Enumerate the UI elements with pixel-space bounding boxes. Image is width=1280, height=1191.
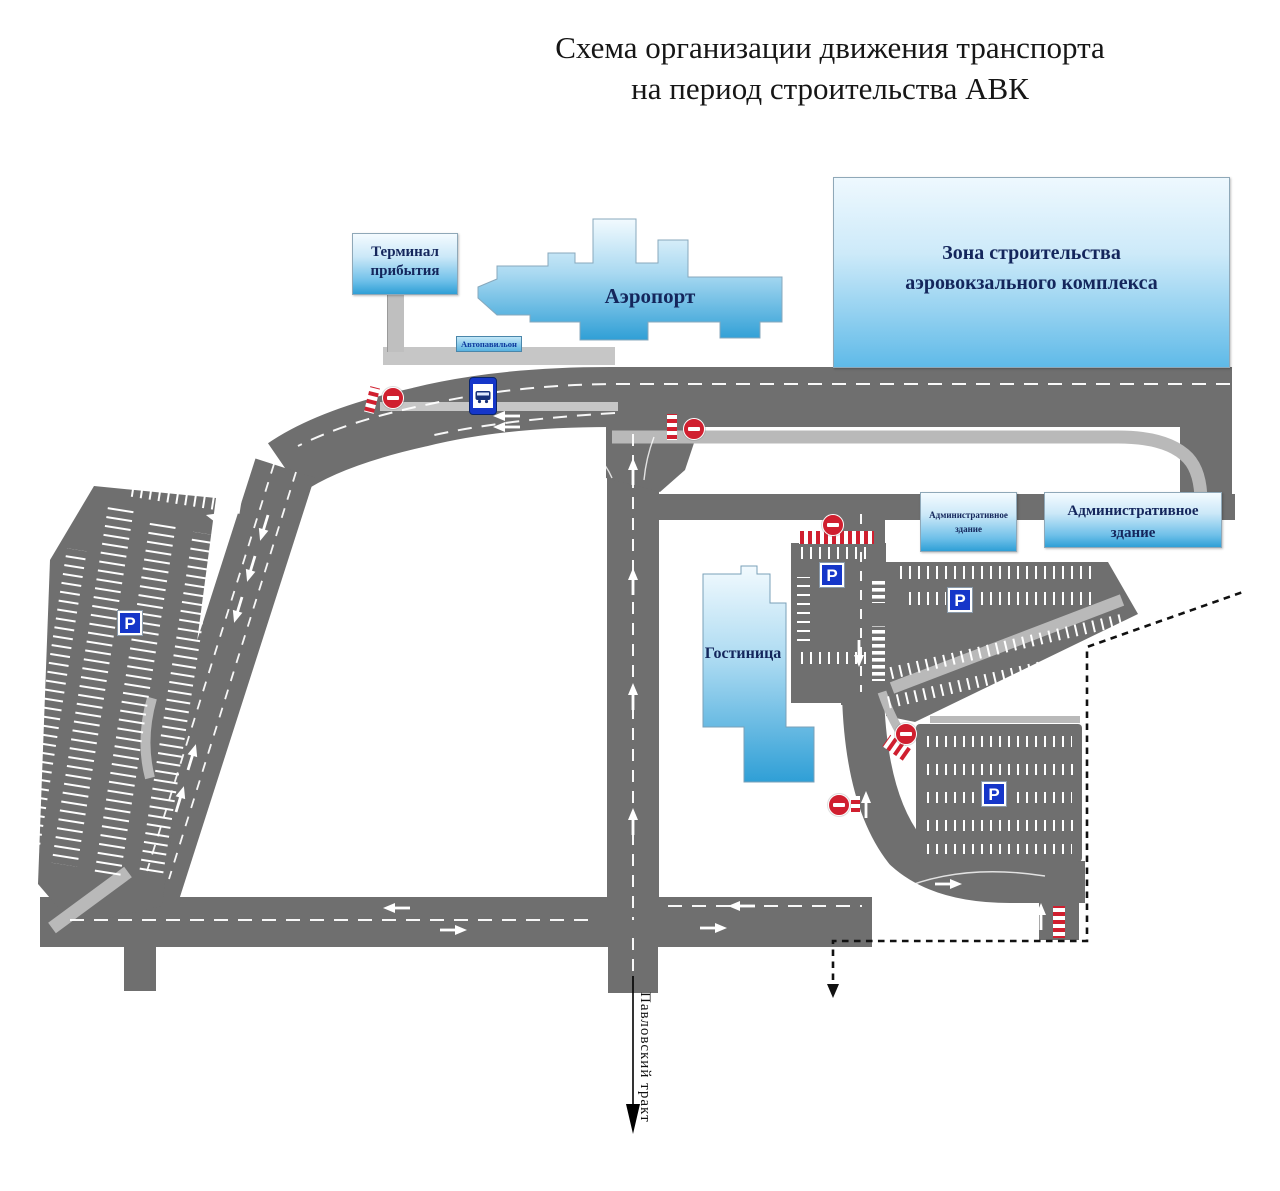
airport-building-shape <box>478 219 782 340</box>
terminal-sign: Терминал прибытия <box>352 233 458 295</box>
traffic-scheme-page: Схема организации движения транспорта на… <box>0 0 1280 1191</box>
admin-building-small: Административное здание <box>920 492 1017 552</box>
no-entry-bar <box>827 523 839 527</box>
parking-curb <box>930 716 1080 723</box>
page-title: Схема организации движения транспорта на… <box>420 28 1240 110</box>
no-entry-sign <box>683 418 705 440</box>
no-entry-sign <box>382 387 404 409</box>
crosswalks <box>872 579 885 681</box>
parking-sign: P <box>948 588 972 612</box>
no-entry-bar <box>387 396 399 400</box>
hotel-label: Гостиница <box>692 645 794 663</box>
parking-sign-letter: P <box>124 615 135 632</box>
no-entry-bar <box>833 803 845 807</box>
no-entry-bar <box>688 427 700 431</box>
page-title-line1: Схема организации движения транспорта <box>420 28 1240 69</box>
admin-building-large: Административное здание <box>1044 492 1222 548</box>
no-entry-sign <box>895 723 917 745</box>
parking-sign-letter: P <box>954 592 965 609</box>
parking-sign: P <box>118 611 142 635</box>
parking-sign-letter: P <box>988 786 999 803</box>
no-entry-bar <box>900 732 912 736</box>
parking-sign: P <box>982 782 1006 806</box>
no-entry-sign <box>822 514 844 536</box>
road-median <box>380 402 618 411</box>
road-label-pavlovsky: Павловский тракт <box>636 992 653 1132</box>
bus-stop-sign <box>469 377 497 415</box>
page-title-line2: на период строительства АВК <box>420 69 1240 110</box>
parking-sign: P <box>820 563 844 587</box>
bus-icon <box>473 383 493 409</box>
terminal-sign-pole <box>387 295 404 352</box>
no-entry-sign <box>828 794 850 816</box>
bus-shelter-label: Автопавильон <box>456 336 522 352</box>
construction-zone: Зона строительства аэровокзального компл… <box>833 177 1230 368</box>
parking-sign-letter: P <box>826 567 837 584</box>
airport-label: Аэропорт <box>560 284 740 309</box>
